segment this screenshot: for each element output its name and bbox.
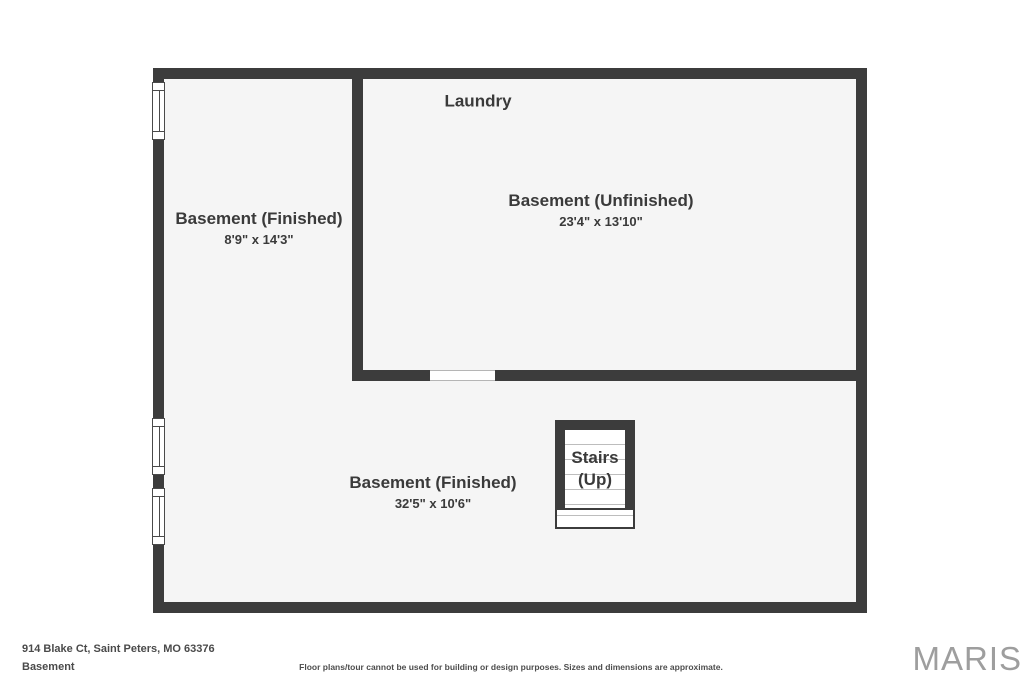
stair-tread-line	[557, 515, 633, 516]
property-address: 914 Blake Ct, Saint Peters, MO 63376	[22, 640, 215, 658]
stairs-landing	[555, 508, 635, 529]
window-sash-line	[153, 466, 164, 467]
window-sash-line	[153, 536, 164, 537]
footer-address-block: 914 Blake Ct, Saint Peters, MO 63376 Bas…	[22, 640, 215, 676]
stairs-label: Stairs (Up)	[571, 447, 618, 491]
window-symbol	[152, 82, 165, 140]
room-name: Basement (Unfinished)	[508, 190, 693, 211]
floor-level-label: Basement	[22, 658, 215, 676]
stairs-label-line1: Stairs	[571, 447, 618, 469]
window-symbol	[152, 418, 165, 475]
room-label-laundry: Laundry	[444, 91, 511, 112]
room-label-basement-finished-left: Basement (Finished) 8'9" x 14'3"	[175, 208, 342, 250]
window-mullion-line	[159, 427, 160, 466]
room-dimensions: 32'5" x 10'6"	[349, 493, 516, 514]
interior-wall-horizontal-right	[495, 370, 856, 381]
room-label-basement-finished-bottom: Basement (Finished) 32'5" x 10'6"	[349, 472, 516, 514]
room-dimensions: 8'9" x 14'3"	[175, 229, 342, 250]
interior-wall-vertical	[352, 79, 363, 381]
wall-opening-symbol	[430, 370, 495, 381]
interior-wall-horizontal-left	[352, 370, 430, 381]
disclaimer-text: Floor plans/tour cannot be used for buil…	[299, 662, 723, 672]
stairs-label-line2: (Up)	[571, 469, 618, 491]
window-mullion-line	[159, 497, 160, 536]
exterior-walls	[153, 68, 867, 613]
room-name: Basement (Finished)	[349, 472, 516, 493]
room-name: Laundry	[444, 91, 511, 112]
window-symbol	[152, 488, 165, 545]
floor-plan-page: Stairs (Up) Laundry Basement (Finished) …	[0, 0, 1024, 682]
maris-logo: MARIS	[912, 642, 1022, 675]
room-name: Basement (Finished)	[175, 208, 342, 229]
room-label-basement-unfinished: Basement (Unfinished) 23'4" x 13'10"	[508, 190, 693, 232]
room-dimensions: 23'4" x 13'10"	[508, 211, 693, 232]
window-mullion-line	[159, 91, 160, 131]
window-sash-line	[153, 131, 164, 132]
